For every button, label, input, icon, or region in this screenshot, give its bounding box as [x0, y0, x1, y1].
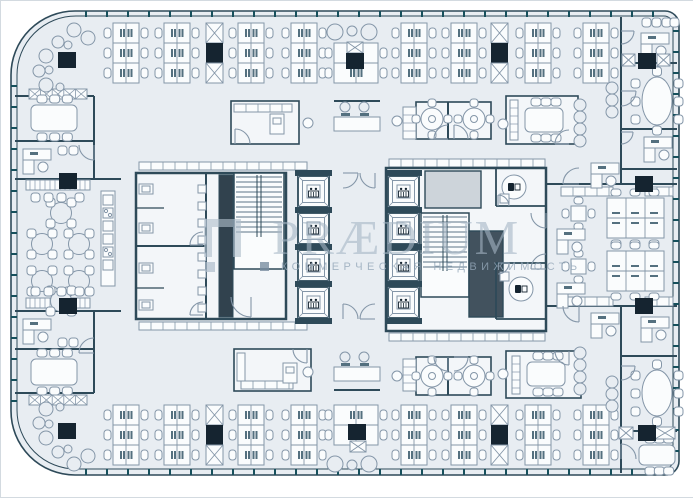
- watermark-subtitle: КОММЕРЧЕСКАЯ НЕДВИЖИМОСТЬ: [281, 261, 581, 273]
- sink: [198, 304, 206, 312]
- kitchen-strip: [101, 191, 115, 286]
- counter: [234, 104, 292, 112]
- column: [638, 53, 656, 69]
- praedium-logo-dot: [205, 262, 215, 272]
- sink: [198, 287, 206, 295]
- column: [635, 298, 653, 314]
- counter: [389, 333, 545, 341]
- elevator: [298, 176, 329, 207]
- watermark-title: PRÆDIUM: [272, 213, 520, 262]
- sink: [198, 185, 206, 193]
- counter: [561, 187, 613, 196]
- counter: [26, 180, 90, 190]
- sink: [198, 202, 206, 210]
- praedium-logo-icon: [204, 219, 241, 257]
- office-floor-plan: PRÆDIUM КОММЕРЧЕСКАЯ НЕДВИЖИМОСТЬ: [0, 0, 693, 498]
- column: [59, 173, 77, 189]
- column: [638, 425, 656, 441]
- column: [346, 53, 364, 69]
- elevator: [388, 287, 419, 318]
- elevator: [388, 176, 419, 207]
- counter: [561, 297, 613, 306]
- elevator: [298, 287, 329, 318]
- column: [58, 423, 76, 439]
- shaft: [425, 171, 481, 208]
- watermark-dot-icon: [260, 262, 269, 271]
- column: [59, 298, 77, 314]
- column: [635, 176, 653, 192]
- column: [348, 424, 366, 440]
- counter: [389, 159, 545, 167]
- column: [58, 52, 76, 68]
- counter: [237, 353, 245, 381]
